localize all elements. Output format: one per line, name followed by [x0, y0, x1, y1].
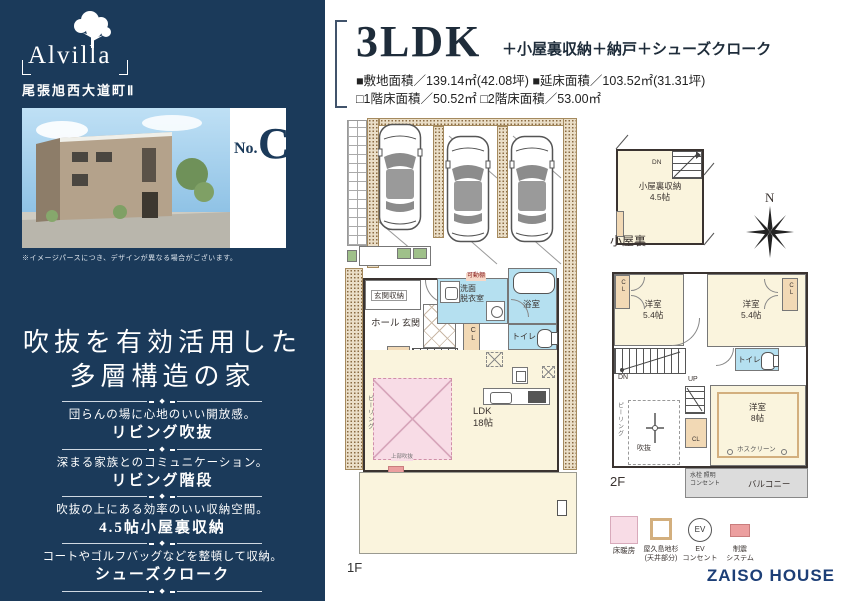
feature-name: 4.5帖小屋裏収納	[0, 516, 325, 537]
divider-dash	[170, 401, 175, 403]
feature-desc: 団らんの場に心地のいい開放感。	[0, 406, 325, 422]
hoscreen-hook	[727, 449, 733, 455]
toilet-label-2f: トイレ	[738, 355, 761, 364]
divider-line	[62, 401, 147, 402]
hoscreen-label: ホスクリーン	[737, 446, 776, 454]
stairs-2f-arrow	[614, 348, 686, 374]
headline-line1: 吹抜を有効活用した	[0, 322, 325, 359]
divider-diamond-icon: ◆	[159, 540, 164, 547]
sidebar: Alvilla 尾張旭西大道町Ⅱ	[0, 0, 325, 601]
toilet-tank	[773, 355, 779, 367]
sink-basin	[445, 287, 458, 300]
divider-dash	[149, 591, 154, 593]
divider-dash	[170, 496, 175, 498]
attic-access-arrow	[685, 386, 705, 414]
ceiling-fan-icon	[646, 413, 664, 443]
south-yard	[359, 472, 577, 554]
builder-brand: ZAISO HOUSE	[0, 566, 835, 586]
attic-caption: 小屋裏	[610, 234, 646, 249]
divider-line	[62, 496, 147, 497]
yard-gate	[557, 500, 567, 516]
balcony-note: 水栓 照明 コンセント	[690, 473, 720, 488]
closet-door-arc	[631, 277, 645, 291]
closet-label: CL	[692, 437, 700, 445]
divider-line	[177, 543, 262, 544]
house-render-image	[22, 108, 230, 248]
attic-plan: DN 小屋裏収納 4.5帖	[614, 133, 718, 237]
bedroom2-closet: CL	[782, 278, 798, 311]
bedroom3-label: 洋室 8帖	[749, 402, 766, 423]
washroom: 洗面 脱衣室 可動棚	[437, 278, 508, 324]
washer-drum	[491, 306, 503, 318]
divider-dash	[149, 401, 154, 403]
kitchen-hanging-cabinet	[486, 352, 503, 367]
refrigerator-space	[542, 366, 555, 378]
headline-line2: 多層構造の家	[0, 356, 325, 393]
project-logo: Alvilla	[28, 42, 111, 70]
unit-number-prefix: No.	[234, 140, 258, 158]
divider-diamond-icon: ◆	[159, 493, 164, 500]
legend-label: 床暖房	[608, 546, 640, 555]
project-subtitle: 尾張旭西大道町Ⅱ	[22, 80, 135, 99]
divider-line	[177, 591, 262, 592]
divider-dash	[149, 449, 154, 451]
divider-line	[177, 449, 262, 450]
kitchen-appliance	[512, 367, 528, 384]
movable-shelf-label: 可動棚	[466, 273, 486, 281]
legend-label: 制震 システム	[720, 546, 760, 564]
feature-desc: 吹抜の上にある効率のいい収納空間。	[0, 501, 325, 517]
planter	[397, 248, 411, 259]
bedroom1-label: 洋室 5.4帖	[643, 299, 663, 320]
void-area: 吹抜	[628, 400, 680, 465]
entrance-label: 玄関	[402, 318, 420, 329]
stove	[528, 391, 546, 403]
photo-caption: ※イメージパースにつき、デザインが異なる場合がございます。	[22, 253, 237, 263]
divider-line	[62, 449, 147, 450]
ldk-label: LDK 18帖	[473, 406, 493, 430]
parked-cars	[378, 123, 558, 245]
floor2-plan: CL 洋室 5.4帖 CL 洋室 5.4帖 DN トイレ	[612, 272, 810, 505]
divider-dash	[170, 591, 175, 593]
header-bracket-top	[335, 20, 347, 22]
divider-dash	[149, 496, 154, 498]
plan-suffix: ＋小屋裏収納＋納戸＋シューズクローク	[502, 38, 771, 59]
divider-line	[177, 496, 262, 497]
header-bracket-bottom	[335, 106, 347, 108]
bedroom1-closet: CL	[615, 275, 630, 309]
flyer-page: Alvilla 尾張旭西大道町Ⅱ	[0, 0, 850, 601]
divider-dash	[170, 543, 175, 545]
void-label: 吹抜	[637, 445, 651, 454]
feature-name: リビング吹抜	[0, 421, 325, 442]
kitchen-sink	[490, 392, 512, 404]
bathtub	[513, 272, 555, 294]
kitchen-counter	[483, 388, 550, 405]
legend-label: EV コンセント	[678, 546, 722, 564]
toilet-room-1f: トイレ	[508, 324, 557, 350]
logo-bracket-left	[22, 60, 31, 75]
approach-paving	[347, 120, 367, 246]
bedroom3: 洋室 8帖 ホスクリーン	[710, 385, 806, 466]
peering-label-1f: ピーリング	[365, 395, 373, 430]
legend: 床暖房 屋久島地杉 (天井部分) EV EV コンセント 制震 システム	[608, 514, 768, 564]
entrance-storage-label: 玄関収納	[371, 290, 407, 301]
peering-label-2f: ピーリング	[615, 402, 623, 437]
header-bracket	[335, 20, 347, 108]
divider-dash	[149, 543, 154, 545]
bedroom2: CL 洋室 5.4帖	[707, 274, 806, 347]
unit-number-panel: No. C	[230, 108, 286, 248]
closet-label: CL	[619, 280, 627, 294]
floor1-plan: 玄関収納 ホール 玄関 SCL 物入 UP 洗面 脱衣室 可動棚	[345, 118, 603, 558]
washroom-label: 洗面 脱衣室	[460, 284, 484, 304]
lot-hatch	[345, 268, 363, 470]
stairs-up-label-2f: UP	[688, 376, 698, 385]
area-line1: ■敷地面積／139.14㎡(42.08坪) ■延床面積／103.52㎡(31.3…	[356, 70, 705, 89]
house-photo-panel: No. C	[22, 108, 286, 248]
divider-diamond-icon: ◆	[159, 446, 164, 453]
floor-heating-area	[373, 378, 452, 460]
hoscreen-hook	[781, 449, 787, 455]
floor2-label: 2F	[610, 474, 625, 490]
hall-label: ホール	[371, 318, 400, 330]
legend-swatch-floor-heating	[610, 516, 638, 544]
planter	[347, 250, 357, 262]
planter	[413, 248, 427, 259]
area-line2: □1階床面積／50.52㎡ □2階床面積／53.00㎡	[356, 88, 601, 107]
divider-line	[177, 401, 262, 402]
legend-swatch-damper	[730, 524, 750, 537]
divider-dash	[170, 449, 175, 451]
divider-diamond-icon: ◆	[159, 398, 164, 405]
divider: ◆	[62, 398, 262, 405]
washer-pan	[486, 301, 505, 321]
bathroom: 浴室	[508, 268, 557, 324]
balcony: 水栓 照明 コンセント バルコニー	[685, 468, 808, 498]
feature-desc: コートやゴルフバッグなどを整頓して収納。	[0, 548, 325, 564]
bedroom2-label: 洋室 5.4帖	[741, 299, 761, 320]
balcony-label: バルコニー	[748, 479, 790, 490]
closet-door-arc	[764, 295, 778, 309]
feature-name: リビング階段	[0, 469, 325, 490]
legend-swatch-cedar	[650, 518, 672, 540]
unit-number: C	[258, 118, 290, 169]
closet-label: CL	[787, 283, 795, 297]
divider-line	[62, 591, 147, 592]
divider: ◆	[62, 446, 262, 453]
logo-bracket-right	[119, 60, 128, 75]
divider-line	[62, 543, 147, 544]
ev-outlet-icon: EV	[688, 518, 712, 542]
closet-door-arc	[764, 279, 778, 293]
compass-north-label: N	[765, 190, 774, 206]
plan-type: 3LDK	[356, 16, 481, 67]
compass-star-icon	[746, 206, 794, 258]
compass: N	[742, 190, 798, 260]
closet-door-arc	[631, 295, 645, 309]
vanity-sink	[440, 281, 460, 303]
divider: ◆	[62, 493, 262, 500]
toilet-label-1f: トイレ	[512, 332, 536, 342]
divider: ◆	[62, 540, 262, 547]
feature-desc: 深まる家族とのコミュニケーション。	[0, 454, 325, 470]
entrance-storage-room: 玄関収納	[365, 280, 421, 310]
lot-hatch	[563, 118, 577, 470]
void-above-label: 上部吹抜	[391, 454, 413, 461]
center-closet: CL	[685, 418, 707, 448]
toilet-tank	[551, 332, 558, 345]
toilet-room-2f: トイレ	[735, 348, 779, 371]
divider-diamond-icon: ◆	[159, 588, 164, 595]
divider: ◆	[62, 588, 262, 595]
stairs-dn-label: DN	[618, 374, 628, 383]
appliance-door	[516, 371, 526, 382]
